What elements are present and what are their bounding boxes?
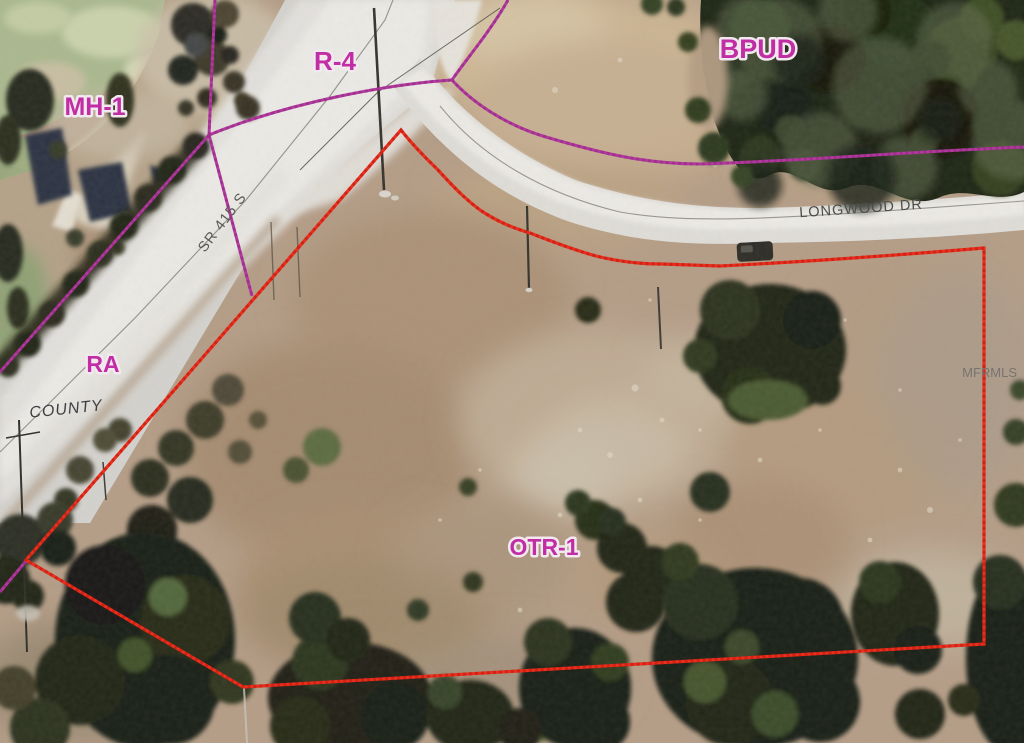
svg-text:MH-1: MH-1 [64,93,125,121]
svg-text:RA: RA [86,351,119,377]
svg-text:MFRMLS: MFRMLS [962,365,1017,380]
svg-text:BPUD: BPUD [720,34,797,64]
svg-text:OTR-1: OTR-1 [510,534,579,560]
svg-text:R-4: R-4 [314,46,356,76]
